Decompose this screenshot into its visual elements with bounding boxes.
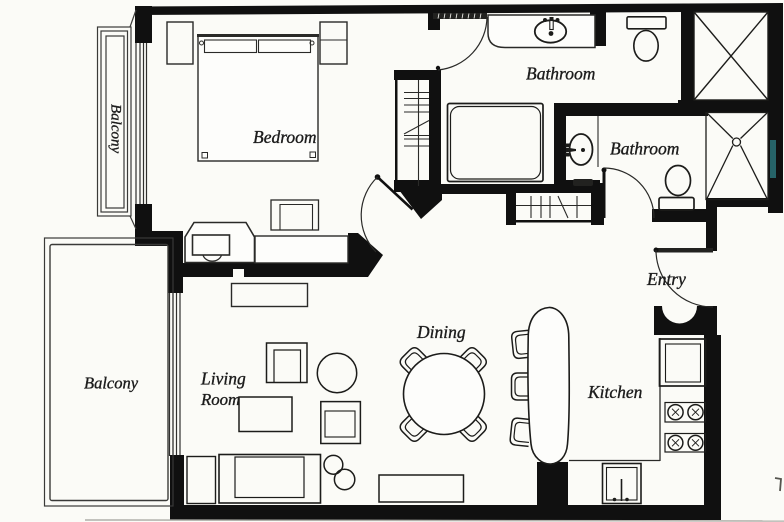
svg-text:Room: Room: [200, 390, 240, 409]
svg-text:Dining: Dining: [416, 322, 466, 342]
svg-text:Bedroom: Bedroom: [253, 127, 317, 147]
svg-text:Balcony: Balcony: [108, 104, 124, 153]
svg-text:Kitchen: Kitchen: [587, 382, 643, 402]
svg-text:Living: Living: [200, 369, 246, 389]
svg-text:Entry: Entry: [646, 269, 686, 289]
svg-text:Bathroom: Bathroom: [526, 64, 595, 84]
svg-text:Bathroom: Bathroom: [610, 139, 679, 159]
svg-text:Balcony: Balcony: [84, 374, 139, 393]
